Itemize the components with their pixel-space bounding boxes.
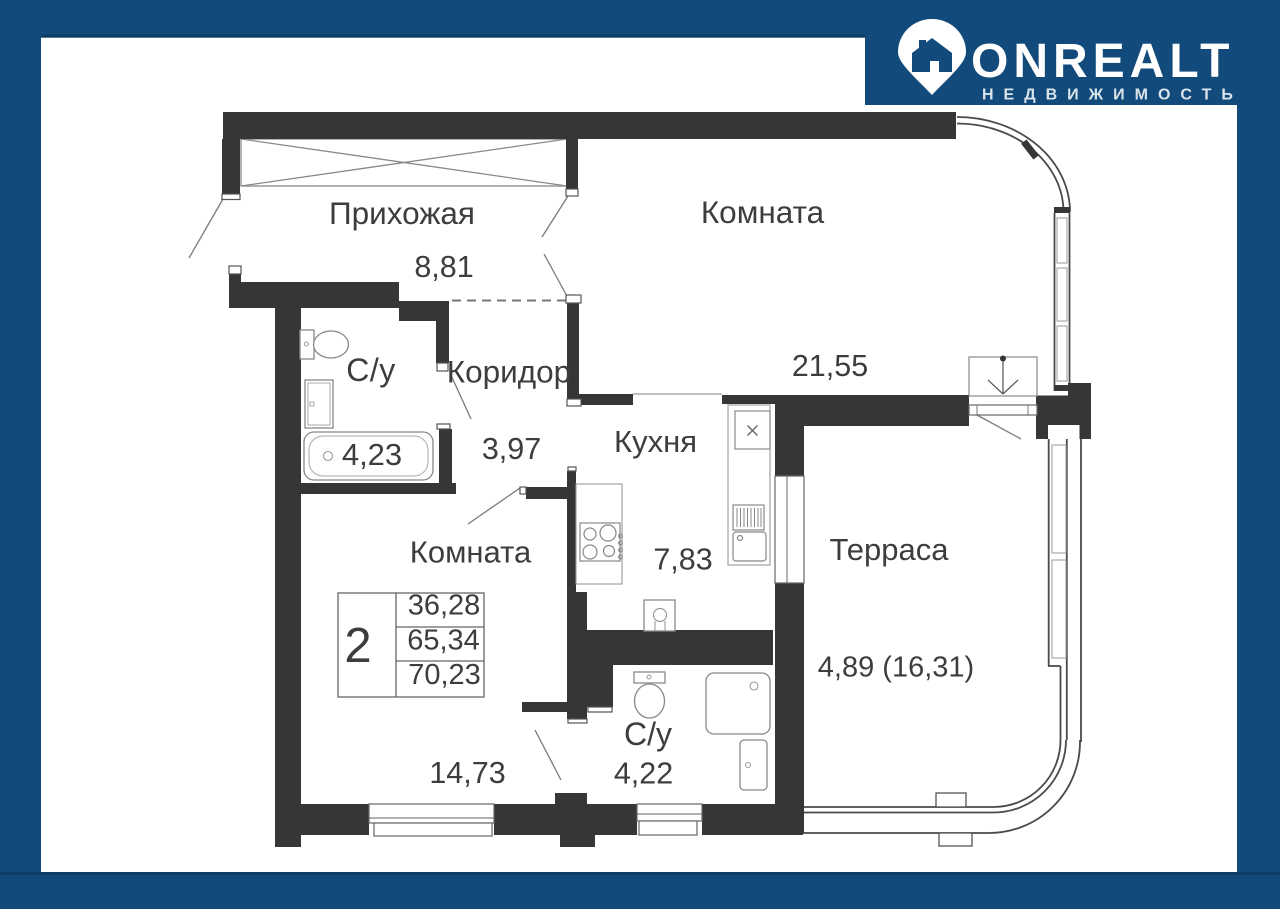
svg-text:Прихожая: Прихожая — [329, 195, 475, 231]
svg-text:4,22: 4,22 — [614, 757, 673, 791]
svg-text:Комната: Комната — [701, 194, 825, 230]
svg-text:2: 2 — [344, 619, 371, 673]
svg-text:70,23: 70,23 — [408, 659, 481, 691]
svg-text:Терраса: Терраса — [830, 532, 950, 567]
svg-text:С/у: С/у — [624, 716, 672, 752]
svg-text:Кухня: Кухня — [614, 424, 697, 459]
svg-text:7,83: 7,83 — [653, 543, 712, 577]
svg-text:С/у: С/у — [346, 352, 396, 388]
svg-text:Коридор: Коридор — [447, 354, 571, 390]
svg-text:4,89 (16,31): 4,89 (16,31) — [818, 652, 974, 684]
svg-text:НЕДВИЖИМОСТЬ: НЕДВИЖИМОСТЬ — [982, 87, 1243, 104]
svg-text:36,28: 36,28 — [408, 590, 481, 622]
svg-text:21,55: 21,55 — [792, 349, 868, 383]
svg-text:65,34: 65,34 — [407, 625, 480, 657]
svg-text:Комната: Комната — [410, 535, 532, 570]
svg-text:3,97: 3,97 — [482, 432, 541, 466]
svg-text:4,23: 4,23 — [342, 437, 402, 472]
svg-text:ONREALT: ONREALT — [971, 35, 1234, 88]
svg-text:14,73: 14,73 — [429, 756, 505, 790]
svg-text:8,81: 8,81 — [414, 250, 473, 284]
